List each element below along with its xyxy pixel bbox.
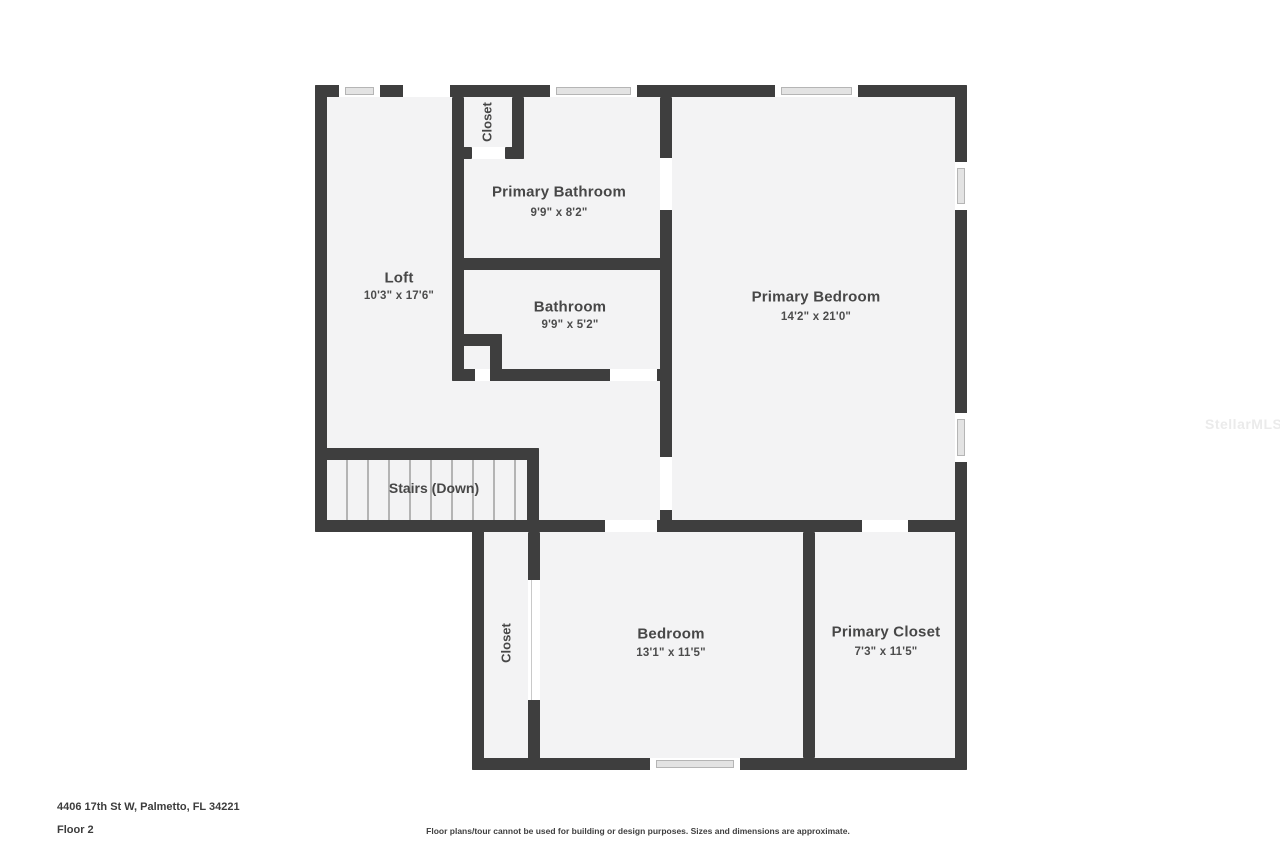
window-primary-bedroom-right-upper bbox=[955, 162, 967, 210]
door-bath-notch bbox=[475, 369, 490, 381]
loft-label: Loft bbox=[384, 270, 413, 287]
primary-bedroom-dims: 14'2" x 21'0" bbox=[781, 311, 851, 323]
primary-closet-dims: 7'3" x 11'5" bbox=[855, 646, 918, 658]
wall-closet-upper-right bbox=[512, 97, 524, 159]
window-bedroom-bottom bbox=[650, 758, 740, 770]
bathroom-label: Bathroom bbox=[534, 299, 606, 316]
door-primary-closet bbox=[862, 520, 908, 532]
primary-bedroom-label: Primary Bedroom bbox=[752, 289, 881, 306]
address-text: 4406 17th St W, Palmetto, FL 34221 bbox=[57, 801, 240, 813]
closet-lower-label: Closet bbox=[499, 623, 514, 663]
loft-dims: 10'3" x 17'6" bbox=[364, 290, 434, 302]
bedroom-label: Bedroom bbox=[637, 626, 704, 643]
wall-left-lower bbox=[472, 520, 484, 770]
stairs-label: Stairs (Down) bbox=[389, 480, 479, 496]
door-closet-lower bbox=[528, 580, 540, 700]
lower-floor-area bbox=[484, 532, 955, 758]
door-primary-bathroom bbox=[660, 158, 672, 210]
window-primary-bathroom-top bbox=[550, 85, 637, 97]
floor-label: Floor 2 bbox=[57, 824, 94, 836]
bathroom-dims: 9'9" x 5'2" bbox=[542, 319, 599, 331]
wall-stairs-right bbox=[527, 448, 539, 532]
primary-closet-label: Primary Closet bbox=[832, 624, 941, 641]
stellar-mls-watermark: StellarMLS bbox=[1205, 416, 1280, 432]
primary-bathroom-label: Primary Bathroom bbox=[492, 184, 626, 201]
door-bedroom bbox=[605, 520, 657, 532]
wall-closet-upper-bottom-left bbox=[452, 147, 472, 159]
door-bathroom bbox=[610, 369, 657, 381]
opening-top-wall bbox=[403, 85, 450, 97]
wall-bathrooms-divider bbox=[452, 258, 672, 270]
wall-left-upper bbox=[315, 85, 327, 532]
primary-bathroom-dims: 9'9" x 8'2" bbox=[531, 207, 588, 219]
window-loft-top bbox=[339, 85, 380, 97]
bedroom-dims: 13'1" x 11'5" bbox=[636, 647, 706, 659]
window-primary-bedroom-top bbox=[775, 85, 858, 97]
floor-plan-page: Closet Primary Bathroom 9'9" x 8'2" Loft… bbox=[0, 0, 1280, 852]
wall-bedroom-closet-divider bbox=[803, 532, 815, 758]
closet-door-track bbox=[531, 580, 532, 700]
closet-upper-label: Closet bbox=[480, 102, 495, 142]
door-closet-upper bbox=[472, 147, 505, 159]
disclaimer-text: Floor plans/tour cannot be used for buil… bbox=[426, 826, 850, 836]
wall-stairs-top bbox=[315, 448, 539, 460]
window-primary-bedroom-right-lower bbox=[955, 413, 967, 462]
door-primary-bedroom bbox=[660, 457, 672, 510]
